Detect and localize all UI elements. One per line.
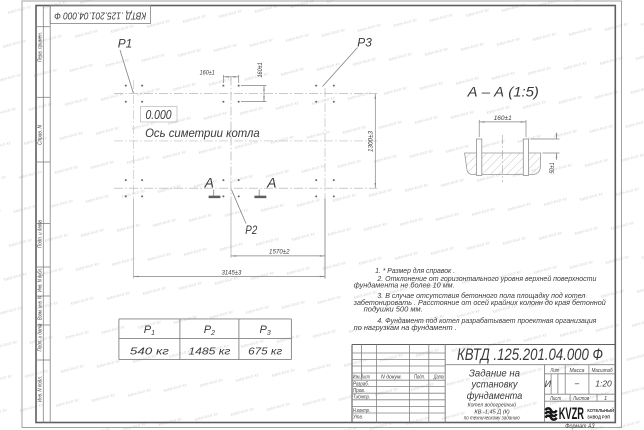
svg-text:0.000: 0.000 (146, 108, 172, 122)
svg-text:Лист: Лист (549, 396, 561, 402)
svg-text:Т.контр.: Т.контр. (353, 395, 370, 401)
svg-text:Масса: Масса (570, 368, 585, 374)
svg-text:забетонировать . Расстояние о: забетонировать . Расстояние от осей край… (353, 299, 606, 307)
svg-text:Н.контр.: Н.контр. (353, 408, 370, 414)
svg-text:675 кг: 675 кг (248, 346, 282, 358)
svg-text:Перв. примен.: Перв. примен. (38, 32, 44, 62)
svg-text:Разраб.: Разраб. (353, 382, 369, 388)
svg-text:KVZR: KVZR (559, 404, 584, 423)
svg-text:1300±3: 1300±3 (367, 131, 374, 152)
svg-text:подушки 500 мм.: подушки 500 мм. (364, 306, 423, 314)
svg-text:Изм.Лист: Изм.Лист (353, 375, 370, 381)
svg-text:Р1: Р1 (118, 37, 133, 51)
svg-text:Справ. N: Справ. N (38, 124, 44, 145)
svg-text:по нагрузкам на фундамент .: по нагрузкам на фундамент . (354, 324, 457, 332)
svg-text:А: А (204, 175, 214, 191)
svg-text:Формат А3: Формат А3 (565, 424, 595, 430)
svg-text:Котел водогрейный: Котел водогрейный (468, 402, 516, 409)
svg-text:50±1: 50±1 (549, 162, 556, 174)
svg-text:Подп. и дата: Подп. и дата (38, 220, 44, 248)
svg-text:КВТД .125.201.04.000 Ф: КВТД .125.201.04.000 Ф (457, 346, 603, 364)
svg-text:И: И (545, 379, 552, 389)
svg-text:1: 1 (604, 396, 607, 402)
svg-text:4. Фундамент под котел разр: 4. Фундамент под котел разрабатывает про… (377, 317, 596, 325)
svg-text:по техническому заданию: по техническому заданию (464, 415, 520, 421)
svg-text:Инв. N подл.: Инв. N подл. (38, 376, 44, 402)
svg-text:540 кг: 540 кг (130, 346, 169, 358)
svg-text:Взам. инв. N: Взам. инв. N (38, 295, 44, 320)
svg-text:160±1: 160±1 (257, 62, 264, 77)
svg-text:КВТД .125.201.04.000 Ф: КВТД .125.201.04.000 Ф (54, 9, 146, 20)
svg-text:фундамента: фундамента (467, 390, 523, 402)
svg-text:Р3: Р3 (357, 35, 372, 49)
svg-text:А: А (266, 175, 276, 191)
svg-text:Пров.: Пров. (353, 388, 365, 394)
svg-text:ЗАВОД РЭП: ЗАВОД РЭП (587, 415, 610, 420)
svg-text:3145±3: 3145±3 (222, 270, 242, 277)
svg-text:КОТЕЛЬНЫЙ: КОТЕЛЬНЫЙ (587, 406, 614, 413)
svg-text:Инв. N дубл.: Инв. N дубл. (38, 268, 44, 292)
svg-text:Задание на: Задание на (469, 367, 520, 379)
svg-text:N докум.: N докум. (381, 375, 402, 381)
svg-text:160±1: 160±1 (200, 69, 215, 76)
svg-text:1:20: 1:20 (595, 379, 612, 389)
svg-text:1570±2: 1570±2 (269, 249, 290, 256)
svg-text:Подп.: Подп. (414, 375, 425, 381)
svg-text:Р2: Р2 (245, 223, 257, 237)
svg-text:3. В случае отсутствия бето: 3. В случае отсутствия бетонного пола пл… (377, 292, 585, 300)
svg-text:Подп. и дата: Подп. и дата (38, 324, 44, 352)
svg-text:1. * Размер для справок .: 1. * Размер для справок . (375, 267, 455, 275)
svg-text:160±1: 160±1 (494, 115, 512, 122)
svg-text:Дата: Дата (433, 375, 444, 381)
svg-text:Лит: Лит (550, 368, 560, 374)
svg-text:1485 кг: 1485 кг (188, 346, 230, 358)
svg-text:Листов: Листов (572, 396, 589, 402)
svg-text:Масштаб: Масштаб (592, 368, 614, 374)
svg-text:Ось симетрии котла: Ось симетрии котла (145, 128, 260, 140)
svg-text:КВ -1,45 Д (К): КВ -1,45 Д (К) (474, 409, 510, 415)
svg-text:Утв.: Утв. (352, 415, 363, 421)
svg-text:А – А (1:5): А – А (1:5) (467, 84, 539, 100)
svg-text:–: – (574, 379, 580, 388)
svg-text:фундамента не более 10 мм.: фундамента не более 10 мм. (354, 281, 455, 289)
svg-text:установку: установку (471, 379, 519, 391)
